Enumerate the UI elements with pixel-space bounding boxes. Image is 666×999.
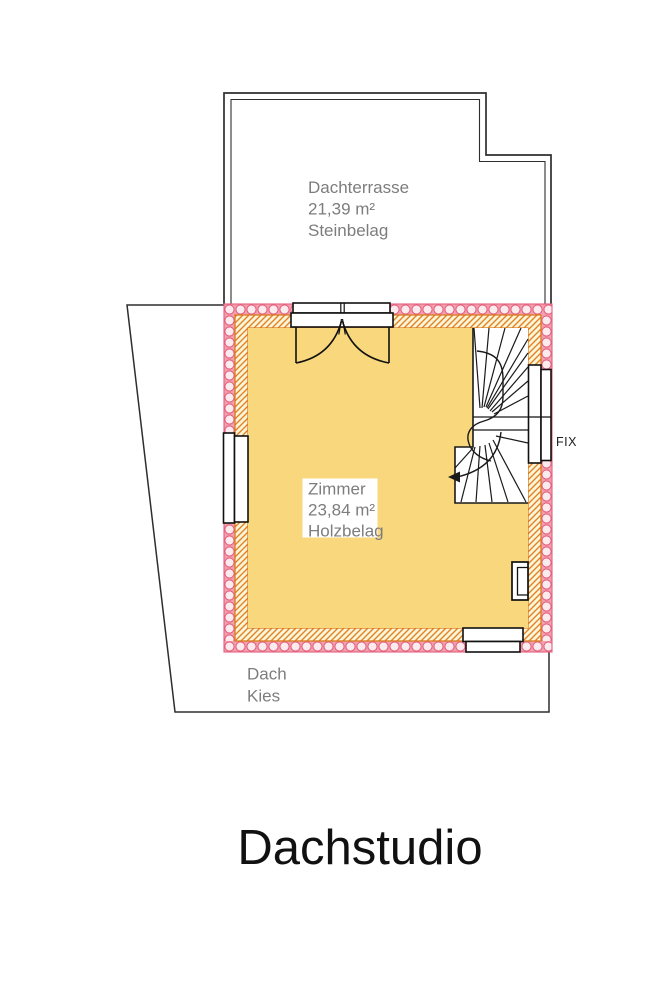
room-name: Zimmer (308, 480, 366, 499)
roof-name: Dach (247, 665, 287, 684)
terrace-outer-wall (224, 93, 551, 304)
window-fix-label: FIX (556, 435, 577, 449)
terrace-inner-wall (231, 100, 545, 305)
room-flooring: Holzbelag (308, 522, 384, 541)
window-fix-outer (541, 370, 551, 461)
window-fix: FIX (529, 365, 578, 463)
room-label: Zimmer 23,84 m² Holzbelag (303, 479, 384, 541)
terrace-flooring: Steinbelag (308, 221, 388, 240)
window-left (224, 433, 249, 523)
roof-covering: Kies (247, 687, 280, 706)
window-left-outer (224, 433, 235, 523)
floor-plan: Dach Kies Dachterrasse 21,39 m² Steinbel… (0, 0, 666, 999)
floor-plan-page: Dach Kies Dachterrasse 21,39 m² Steinbel… (0, 0, 666, 999)
window-left-inner (235, 436, 249, 522)
wall-niche (512, 562, 528, 600)
door-frame (291, 313, 393, 327)
room-area: 23,84 m² (308, 501, 375, 520)
terrace: Dachterrasse 21,39 m² Steinbelag (224, 93, 551, 304)
window-bottom-outer (466, 642, 520, 653)
plan-title: Dachstudio (237, 821, 482, 875)
terrace-area: 21,39 m² (308, 200, 375, 219)
door-panel (293, 303, 390, 313)
insulation-band-right (541, 315, 552, 641)
window-bottom-inner (463, 628, 523, 642)
window-bottom (463, 628, 523, 652)
terrace-name: Dachterrasse (308, 178, 409, 197)
window-fix-inner (529, 365, 542, 463)
